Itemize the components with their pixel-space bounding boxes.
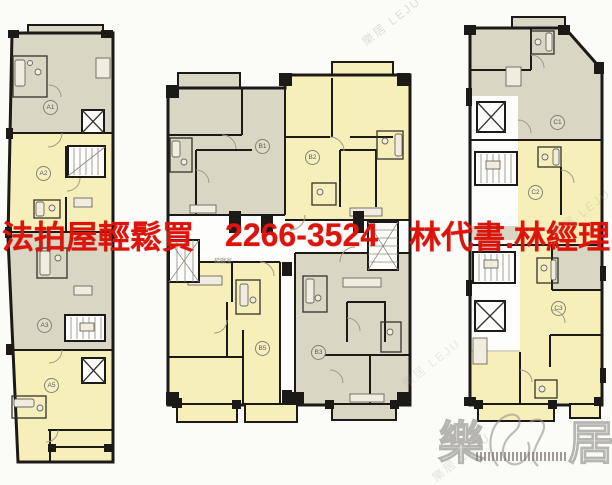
brand-logo-flourish-icon [468,408,568,472]
unit-label-a3: A3 [37,318,52,333]
unit-b5-area [169,262,280,404]
unit-label-c2: C2 [528,185,543,200]
unit-label-b3: B3 [311,345,326,360]
a3-kitchen-counter [74,286,92,295]
right-stairs-upper [475,152,517,185]
ad-text-phone: 2266-3524 [225,217,378,254]
unit-label-b2: B2 [305,150,320,165]
unit-label-a2: A2 [36,166,51,181]
unit-label-a1: A1 [43,100,58,115]
unit-label-c1: C1 [550,115,565,130]
toilet [35,69,41,75]
brand-watermark-right-char: 居 [568,420,612,466]
ad-text-prefix: 法拍屋輕鬆買 [2,212,194,258]
unit-label-a5: A5 [44,378,59,393]
unit-label-b1: B1 [255,139,270,154]
sink [28,61,33,66]
bathtub [15,60,25,86]
brand-watermark-small-text [476,452,568,461]
b3-kitchen-counter [343,278,381,287]
ad-text-overlay: 法拍屋輕鬆買 2266-3524 林代書.林經理 [2,212,610,258]
b2-balcony [332,62,393,75]
b3-counter-2 [350,394,384,402]
a2-kitchen-counter [74,198,92,207]
unit-label-c3: C3 [551,301,566,316]
left-elevator-upper [82,110,104,133]
right-elevator-lower [475,301,505,331]
floor-plan-image: A1 A2 A3 A5 B1 B2 B5 B3 C1 C2 C3 梯廳室 法拍屋… [0,0,612,480]
left-elevator-lower [82,358,105,383]
unit-b2-area [285,76,409,220]
b1-balcony [178,73,240,88]
a1-kitchen-counter [96,58,110,78]
right-top-balcony [512,17,565,28]
left-stairs-lower [65,315,105,341]
left-stairs-upper [68,146,105,177]
unit-label-b5: B5 [255,341,270,356]
c1-kitchen-counter [506,67,521,86]
c3-kitchen-counter [473,338,487,364]
right-elevator-upper [477,102,505,132]
